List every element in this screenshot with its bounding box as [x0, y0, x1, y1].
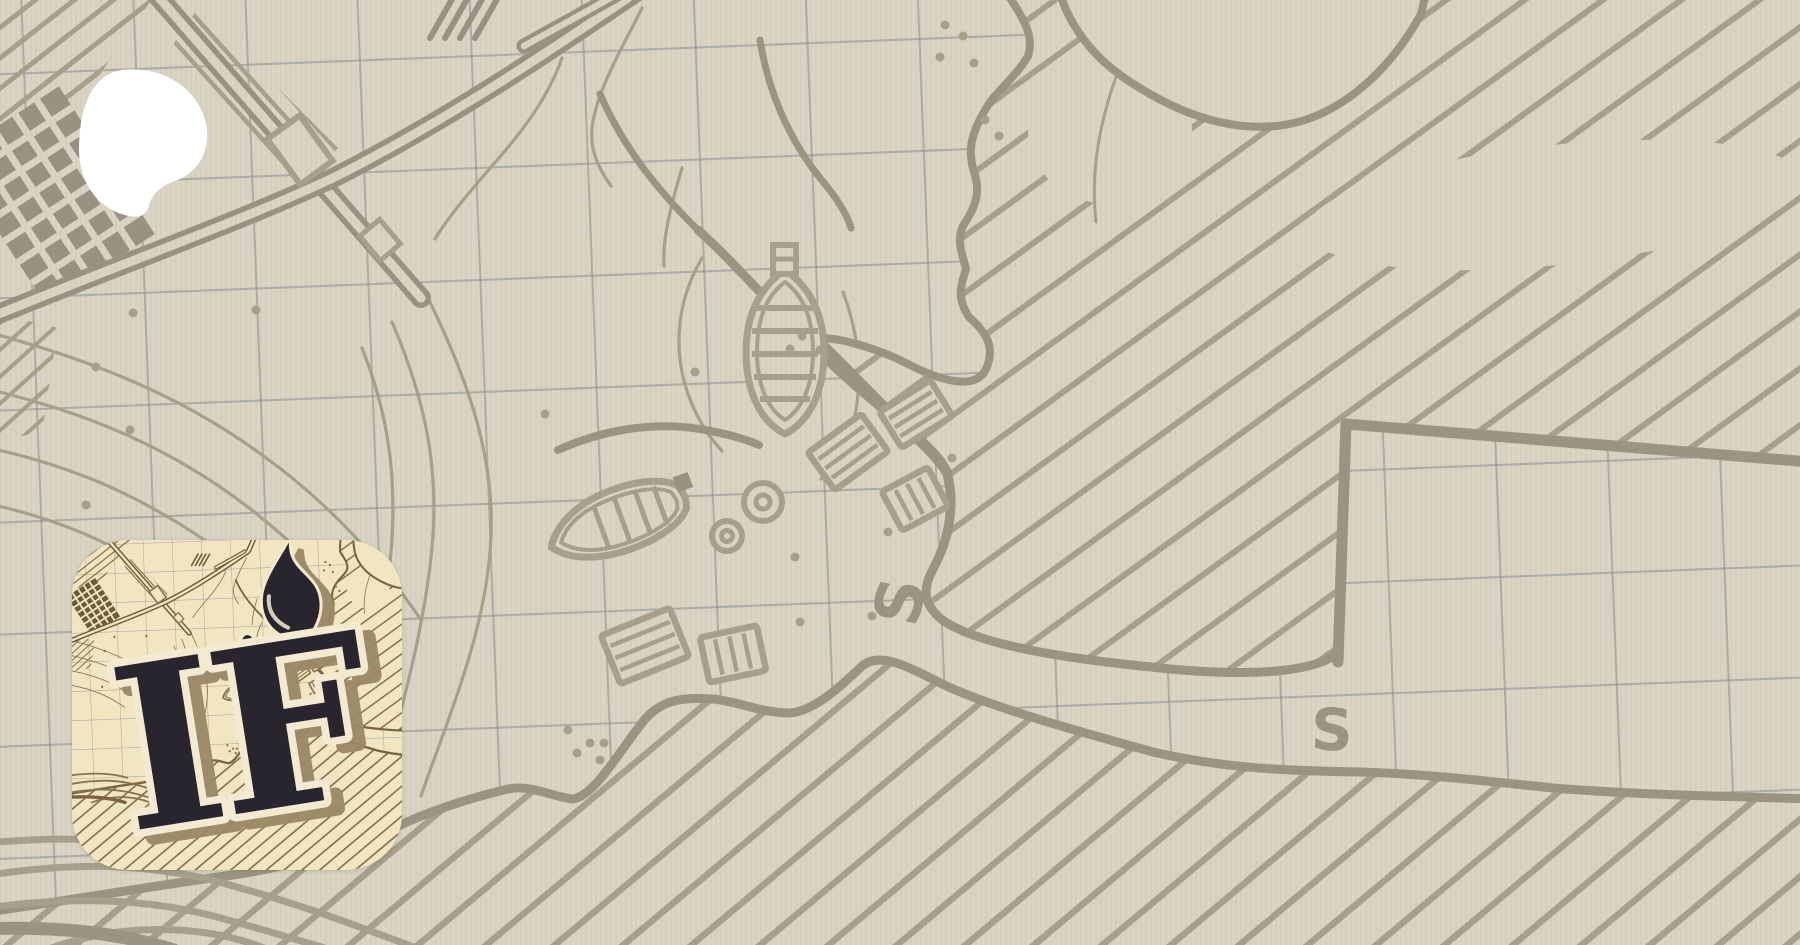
creator-logo: IF IF	[72, 540, 402, 870]
patreon-logo-icon[interactable]	[77, 68, 210, 217]
logo-text: IF	[97, 584, 389, 870]
dock-structure	[700, 625, 766, 682]
well-circle	[712, 521, 742, 551]
map-label: S	[1310, 695, 1354, 764]
patreon-logo-shape	[79, 69, 207, 216]
well-circle	[744, 483, 782, 521]
creator-avatar[interactable]: SS IF IF	[72, 540, 402, 870]
banner: SS SS IF IF	[0, 0, 1800, 945]
